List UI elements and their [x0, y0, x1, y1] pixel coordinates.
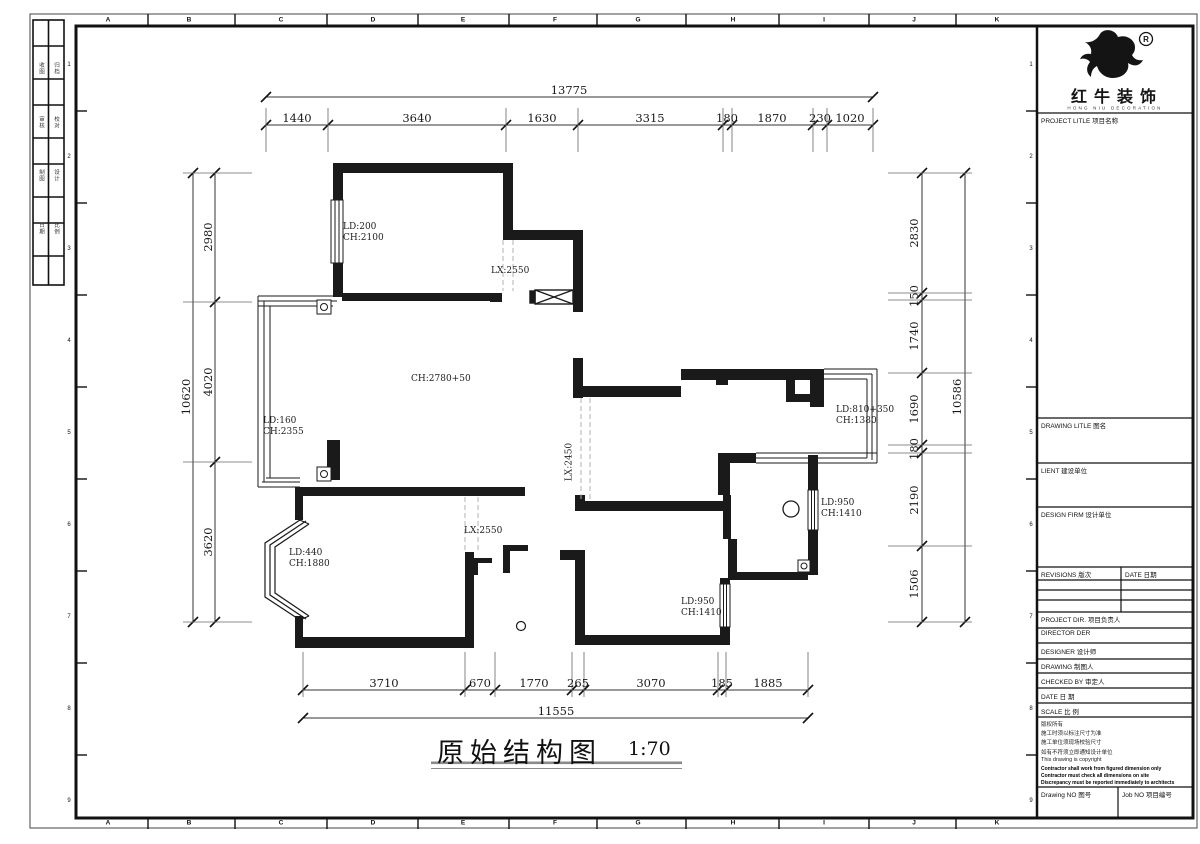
bay-window-icon: [265, 518, 309, 622]
tb-drawing-title: DRAWING LITLE 图名: [1041, 420, 1106, 430]
tb-date-col: DATE 日期: [1125, 569, 1157, 579]
strip-cell-label: 校对: [52, 116, 60, 129]
grid-letter-bottom: H: [731, 820, 736, 827]
room-label-line: CH:1380: [836, 416, 894, 427]
dim-label: 1020: [835, 111, 864, 125]
grid-letter-top: C: [279, 17, 284, 24]
grid-number-right: 2: [1029, 154, 1032, 160]
wall: [575, 550, 585, 645]
tb-drawing-no: Drawing NO 图号: [1041, 789, 1091, 799]
svg-text:R: R: [1143, 35, 1149, 44]
tb-project-title: PROJECT LITLE 项目名称: [1041, 115, 1118, 125]
floorplan-drawing: R: [0, 0, 1200, 844]
tb-date: DATE 日 期: [1041, 691, 1074, 701]
grid-letter-top: B: [187, 17, 192, 24]
grid-letter-bottom: B: [187, 820, 192, 827]
grid-number-left: 9: [67, 798, 70, 804]
wall: [793, 394, 812, 402]
dim-label: 3620: [201, 527, 215, 556]
wall: [465, 552, 474, 648]
grid-letter-top: H: [731, 17, 736, 24]
dim-label: 2190: [907, 485, 921, 514]
strip-cell-label: 比例: [52, 222, 60, 235]
grid-letter-bottom: D: [371, 820, 376, 827]
room-label: LX:2450: [565, 443, 576, 481]
grid-letter-top: K: [995, 17, 1000, 24]
room-label: LD:200CH:2100: [343, 222, 384, 244]
room-label-line: CH:1410: [681, 608, 722, 619]
grid-letter-top: I: [823, 17, 825, 24]
dim-label: 1506: [907, 569, 921, 598]
wall: [490, 295, 502, 302]
room-label: LD:440CH:1880: [289, 548, 330, 570]
dim-label: 2980: [201, 222, 215, 251]
room-label-line: LX:2550: [491, 266, 529, 277]
grid-number-right: 7: [1029, 614, 1032, 620]
grid-number-left: 7: [67, 614, 70, 620]
strip-cell-label: 设计: [52, 169, 60, 182]
wall: [720, 627, 730, 645]
wall: [718, 463, 730, 495]
wall: [333, 173, 343, 200]
wall: [333, 163, 513, 173]
strip-cell-label: 归档: [52, 62, 60, 75]
room-label-line: CH:2100: [343, 233, 384, 244]
room-label-line: LX:2550: [464, 526, 502, 537]
room-label-line: CH:2355: [263, 427, 304, 438]
grid-letter-top: G: [635, 17, 640, 24]
dim-label: 3640: [402, 111, 431, 125]
grid-letter-bottom: J: [912, 820, 916, 827]
room-label-line: LX:2450: [565, 443, 576, 481]
tb-designer: DESIGNER 设计师: [1041, 646, 1096, 656]
dim-label: 1870: [757, 111, 786, 125]
wall: [573, 230, 583, 312]
grid-letter-bottom: C: [279, 820, 284, 827]
grid-number-left: 1: [67, 62, 70, 68]
wall: [585, 635, 730, 645]
grid-number-right: 4: [1029, 338, 1032, 344]
grid-number-left: 3: [67, 246, 70, 252]
tb-revisions: REVISIONS 版次: [1041, 569, 1091, 579]
drawing-sheet: R 红牛装饰 HONG NIU DECORATION PROJECT LITLE…: [0, 0, 1200, 844]
dim-label: 185: [711, 676, 733, 690]
flue-icon: [530, 290, 573, 304]
dim-label-top-total: 13775: [551, 83, 588, 97]
dim-label: 3070: [636, 676, 665, 690]
grid-letter-top: D: [371, 17, 376, 24]
wall: [295, 487, 525, 496]
grid-letter-bottom: F: [553, 820, 557, 827]
strip-cell-label: 审核: [37, 116, 45, 129]
room-label: LD:950CH:1410: [821, 498, 862, 520]
logo-subtitle: HONG NIU DECORATION: [1067, 106, 1162, 111]
tb-copyright-bold-line: Contractor must check all dimensions on …: [1041, 773, 1149, 779]
dim-label-right-total: 10586: [950, 379, 964, 416]
dim-label: 3710: [369, 676, 398, 690]
wall: [560, 550, 575, 560]
dim-label: 670: [469, 676, 491, 690]
grid-letter-bottom: G: [635, 820, 640, 827]
wall: [503, 230, 581, 240]
tb-design-firm: DESIGN FIRM 设计单位: [1041, 509, 1111, 519]
grid-letter-top: E: [461, 17, 465, 24]
wall: [473, 558, 478, 575]
room-label: LD:950CH:1410: [681, 597, 722, 619]
grid-number-right: 5: [1029, 430, 1032, 436]
wall: [342, 293, 502, 301]
door-hinge-icons: [317, 300, 810, 572]
grid-number-right: 8: [1029, 706, 1032, 712]
dim-label: 180: [716, 111, 738, 125]
window-room1-icon: [331, 200, 343, 263]
wall: [718, 453, 756, 463]
tb-copyright-line: 施工单位须现场校验尺寸: [1041, 738, 1102, 746]
room-label-line: CH:1880: [289, 559, 330, 570]
dim-label: 150: [907, 285, 921, 307]
room-label-line: CH:2780+50: [411, 374, 471, 385]
room-label-line: LD:950: [681, 597, 722, 608]
grid-letter-bottom: E: [461, 820, 465, 827]
dim-label-bottom-total: 11555: [538, 704, 575, 718]
room-label: LD:160CH:2355: [263, 416, 304, 438]
room-label-line: LD:810+350: [836, 405, 894, 416]
room-label-line: LD:200: [343, 222, 384, 233]
grid-number-right: 6: [1029, 522, 1032, 528]
tb-director: DIRECTOR DER: [1041, 630, 1090, 637]
tb-copyright-bold-line: Contractor shall work from figured dimen…: [1041, 766, 1161, 772]
grid-number-right: 3: [1029, 246, 1032, 252]
plan-scale: 1:70: [628, 738, 671, 760]
tb-drawing-by: DRAWING 制图人: [1041, 661, 1093, 671]
duct-walls: [503, 545, 528, 573]
room-label-line: LD:440: [289, 548, 330, 559]
grid-letter-top: A: [106, 17, 111, 24]
dim-label: 2830: [907, 218, 921, 247]
main-border: [76, 26, 1193, 818]
tb-project-dir: PROJECT DIR. 项目负责人: [1041, 614, 1120, 624]
strip-cell-label: 日期: [37, 222, 45, 235]
dim-label: 180: [907, 438, 921, 460]
wall: [333, 263, 343, 297]
outer-frame: [30, 14, 1197, 828]
room-label-line: LD:160: [263, 416, 304, 427]
dim-label: 230: [809, 111, 831, 125]
room-label-line: CH:1410: [821, 509, 862, 520]
wall: [573, 358, 583, 398]
strip-cell-label: 制图: [37, 169, 45, 182]
drain-circle-small-icon: [517, 622, 526, 631]
grid-letter-top: J: [912, 17, 916, 24]
room-label: CH:2780+50: [411, 374, 471, 385]
wall: [808, 455, 818, 490]
wall: [716, 380, 728, 385]
tb-copyright-line: This drawing is copyright: [1041, 757, 1102, 763]
dim-label: 4020: [201, 367, 215, 396]
tb-copyright-line: 版权所有: [1041, 720, 1063, 728]
opening-dashes: [465, 240, 590, 551]
wall: [585, 501, 725, 511]
dim-label: 1630: [527, 111, 556, 125]
tb-copyright-line: 如有不符须立即通知设计单位: [1041, 748, 1113, 756]
grid-letter-bottom: A: [106, 820, 111, 827]
grid-number-left: 6: [67, 522, 70, 528]
tb-copyright-line: 施工时须以标注尺寸为准: [1041, 729, 1102, 737]
tb-client: LIENT 建设单位: [1041, 465, 1087, 475]
wall: [810, 369, 824, 407]
corner-strip: [33, 20, 64, 285]
wall: [503, 173, 513, 230]
dim-label: 1885: [753, 676, 782, 690]
wall: [583, 386, 681, 397]
dim-label-left-total: 10620: [179, 379, 193, 416]
wall: [575, 495, 585, 511]
tb-copyright-bold-line: Discrepancy must be reported immediately…: [1041, 780, 1174, 786]
room-label: LX:2550: [491, 266, 529, 277]
grid-number-right: 1: [1029, 62, 1032, 68]
dim-label: 1440: [282, 111, 311, 125]
grid-number-left: 2: [67, 154, 70, 160]
logo-name: 红牛装饰: [1071, 83, 1163, 107]
room-label: LD:810+350CH:1380: [836, 405, 894, 427]
tb-checked-by: CHECKED BY 审定人: [1041, 676, 1104, 686]
logo-bull-icon: R: [1080, 30, 1153, 78]
grid-number-left: 4: [67, 338, 70, 344]
grid-number-left: 5: [67, 430, 70, 436]
wall: [728, 572, 808, 580]
grid-number-left: 8: [67, 706, 70, 712]
dim-label: 265: [567, 676, 589, 690]
grid-letter-top: F: [553, 17, 557, 24]
grid-letter-bottom: I: [823, 820, 825, 827]
dim-label: 1690: [907, 394, 921, 423]
window-right-icon: [808, 490, 818, 530]
wall: [720, 578, 730, 584]
wall: [295, 495, 303, 520]
dim-label: 1770: [519, 676, 548, 690]
strip-cell-label: 收图: [37, 62, 45, 75]
grid-letter-bottom: K: [995, 820, 1000, 827]
drain-circle-icon: [783, 501, 799, 517]
tb-job-no: Job NO 项目编号: [1122, 789, 1172, 799]
room-label: LX:2550: [464, 526, 502, 537]
plan-title: 原始结构图: [437, 731, 602, 770]
wall: [295, 637, 467, 648]
room-label-line: LD:950: [821, 498, 862, 509]
wall: [681, 369, 824, 380]
dim-label: 1740: [907, 321, 921, 350]
tb-scale: SCALE 比 例: [1041, 706, 1079, 716]
grid-number-right: 9: [1029, 798, 1032, 804]
wall: [723, 495, 731, 539]
dim-label: 3315: [635, 111, 664, 125]
